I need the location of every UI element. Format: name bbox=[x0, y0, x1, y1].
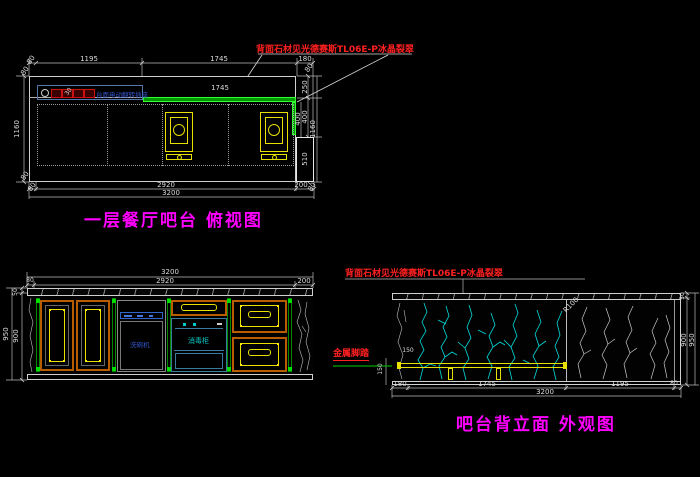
dim-1160-left: 1160 bbox=[13, 109, 21, 149]
door-bead bbox=[85, 309, 101, 362]
socket-icon bbox=[41, 89, 49, 97]
stile-cap bbox=[288, 299, 292, 303]
dim-80: 80 bbox=[654, 380, 694, 388]
plan-divider-dashed bbox=[228, 104, 229, 166]
footrest-support bbox=[496, 368, 501, 380]
footrest-support bbox=[448, 368, 453, 380]
bead-ornament bbox=[240, 343, 242, 345]
dim-1195: 1195 bbox=[600, 380, 640, 388]
drawer-handle bbox=[248, 311, 271, 318]
door-bead bbox=[49, 309, 65, 362]
footrest-endcap bbox=[397, 362, 401, 369]
dim-510: 510 bbox=[301, 139, 309, 179]
footrest-bar bbox=[400, 363, 564, 368]
back-cyan-marble bbox=[408, 300, 566, 381]
plan-title: 一层餐厅吧台 俯视图 bbox=[84, 206, 263, 231]
bead-ornament bbox=[63, 360, 65, 362]
cabinet-stile bbox=[227, 298, 231, 372]
sterilizer-divider bbox=[174, 350, 224, 351]
bead-ornament bbox=[277, 343, 279, 345]
dim-2920: 2920 bbox=[145, 277, 185, 285]
dishwasher-control-strip bbox=[120, 312, 163, 319]
dim-200: 200 bbox=[284, 277, 324, 285]
bead-ornament bbox=[277, 305, 279, 307]
socket-module-icon bbox=[84, 89, 95, 98]
bead-ornament bbox=[85, 360, 87, 362]
back-countertop bbox=[392, 293, 681, 300]
drawer-handle bbox=[248, 349, 271, 356]
footrest-label: 金属脚踏 bbox=[333, 346, 369, 361]
plan-divider-dashed bbox=[107, 104, 108, 166]
sterilizer-control-strip bbox=[175, 321, 223, 329]
bead-ornament bbox=[99, 360, 101, 362]
bead-ornament bbox=[240, 325, 242, 327]
cad-canvas: 台面电动翻转插座 80 1195 1745 180 80 1745 1160 8… bbox=[0, 0, 700, 477]
front-base-line bbox=[27, 374, 313, 375]
stile-cap bbox=[227, 299, 231, 303]
dimension-linework bbox=[0, 0, 700, 477]
front-left-marble-panel bbox=[27, 296, 36, 374]
control-icon bbox=[149, 315, 153, 317]
dim-1745: 1745 bbox=[199, 55, 239, 63]
dim-3200: 3200 bbox=[150, 268, 190, 276]
bead-ornament bbox=[85, 309, 87, 311]
sink-drain-circle bbox=[268, 124, 280, 136]
stone-note: 背面石材见光德赛斯TL06E-P冰晶裂翠 bbox=[345, 266, 503, 279]
dishwasher-label: 洗碗机 bbox=[130, 339, 150, 349]
dim-150-inset: 150 bbox=[388, 347, 428, 355]
drawer-handle bbox=[181, 304, 217, 311]
stile-cap bbox=[227, 367, 231, 371]
dim-900: 900 bbox=[12, 316, 20, 356]
bead-ornament bbox=[277, 364, 279, 366]
dim-50: 50 bbox=[12, 272, 20, 312]
dim-1160-right: 1160 bbox=[309, 109, 317, 149]
control-icon bbox=[193, 323, 196, 326]
dim-1745-inner: 1745 bbox=[200, 84, 240, 92]
bead-ornament bbox=[49, 360, 51, 362]
control-icon bbox=[124, 315, 132, 317]
dim-1195: 1195 bbox=[69, 55, 109, 63]
back-gray-marble bbox=[566, 300, 675, 381]
bead-ornament bbox=[99, 309, 101, 311]
dim-1745: 1745 bbox=[467, 380, 507, 388]
front-right-marble-panel bbox=[294, 296, 313, 374]
dim-50: 50 bbox=[679, 276, 687, 316]
faucet-hole-icon bbox=[272, 155, 277, 160]
sterilizer: 消毒柜 bbox=[171, 318, 227, 372]
control-icon bbox=[183, 323, 186, 326]
control-icon bbox=[217, 323, 222, 325]
footrest-endcap bbox=[563, 362, 567, 369]
bead-ornament bbox=[277, 325, 279, 327]
stile-cap bbox=[112, 299, 116, 303]
socket-box: 台面电动翻转插座 bbox=[37, 85, 143, 100]
dishwasher: 洗碗机 bbox=[117, 300, 166, 372]
bead-ornament bbox=[240, 364, 242, 366]
dim-180: 180 bbox=[380, 380, 420, 388]
stone-note: 背面石材见光德赛斯TL06E-P冰晶裂翠 bbox=[256, 42, 414, 55]
dim-3200: 3200 bbox=[525, 388, 565, 396]
bead-ornament bbox=[49, 309, 51, 311]
sterilizer-label: 消毒柜 bbox=[188, 336, 209, 346]
cabinet-stile bbox=[112, 298, 116, 372]
dim-2920: 2920 bbox=[146, 181, 186, 189]
dim-950: 950 bbox=[2, 314, 10, 354]
cabinet-stile bbox=[288, 298, 292, 372]
dim-400: 400 bbox=[301, 97, 309, 137]
stile-cap bbox=[288, 367, 292, 371]
stone-strip bbox=[143, 97, 296, 102]
bead-ornament bbox=[240, 305, 242, 307]
faucet-hole-icon bbox=[177, 155, 182, 160]
control-icon bbox=[137, 315, 143, 317]
sterilizer-lower-door bbox=[175, 353, 223, 369]
socket-label: 台面电动翻转插座 bbox=[96, 89, 148, 99]
dim-3200: 3200 bbox=[151, 189, 191, 197]
dim-950: 950 bbox=[688, 320, 696, 360]
stile-cap bbox=[112, 367, 116, 371]
plan-divider-dashed bbox=[162, 104, 163, 166]
front-countertop bbox=[27, 288, 313, 296]
bead-ornament bbox=[63, 309, 65, 311]
dim-900: 900 bbox=[680, 320, 688, 360]
back-title: 吧台背立面 外观图 bbox=[456, 410, 616, 435]
sink-drain-circle bbox=[173, 124, 185, 136]
